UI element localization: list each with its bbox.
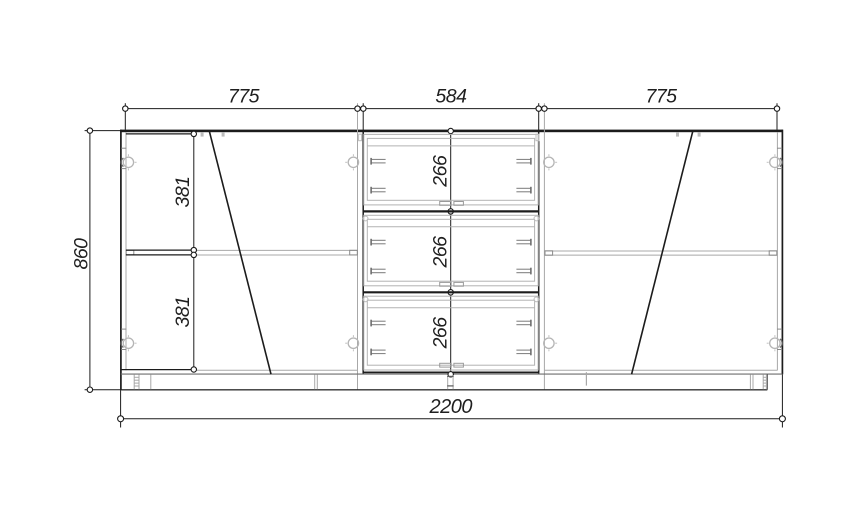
svg-text:266: 266	[430, 155, 452, 188]
svg-text:381: 381	[172, 296, 194, 327]
svg-text:775: 775	[645, 85, 677, 107]
svg-text:266: 266	[430, 317, 452, 350]
svg-text:2200: 2200	[429, 396, 473, 418]
svg-text:584: 584	[435, 85, 467, 107]
svg-text:860: 860	[71, 238, 93, 270]
svg-text:266: 266	[430, 236, 452, 269]
svg-text:381: 381	[172, 176, 194, 207]
svg-text:775: 775	[228, 85, 260, 107]
